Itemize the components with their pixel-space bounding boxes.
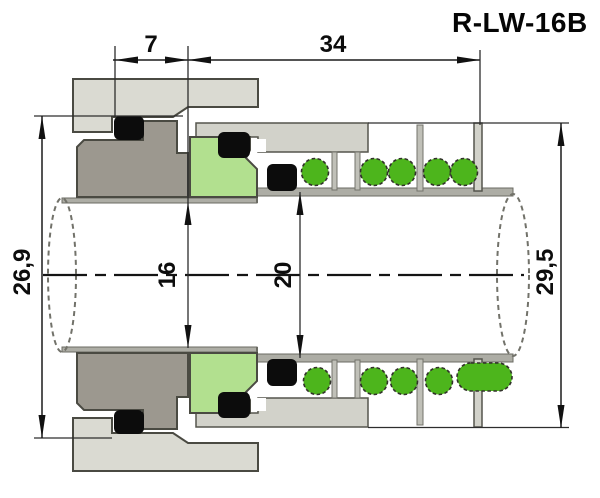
dim-34-label: 34	[320, 31, 347, 58]
drawing-title: R-LW-16B	[452, 7, 588, 38]
spring-coil	[424, 159, 451, 186]
spring-post-lower-2	[355, 360, 360, 398]
arrowhead	[185, 325, 192, 348]
dim-26-9-label: 26,9	[9, 249, 36, 296]
arrowhead	[39, 415, 46, 438]
spring-post-upper-1	[332, 152, 337, 190]
dim-7-label: 7	[144, 31, 157, 58]
dim-16-label: 16	[154, 262, 181, 289]
arrowhead	[115, 57, 138, 64]
arrowhead	[558, 123, 565, 146]
retainer-notch-lower	[257, 398, 266, 411]
oring-bellows-lower	[218, 392, 250, 418]
oring-shaft-lower	[267, 359, 297, 386]
spring-coil	[391, 368, 418, 395]
oring-seat-upper	[114, 116, 144, 140]
arrowhead	[165, 57, 188, 64]
arrowhead	[185, 202, 192, 225]
retainer-notch-upper	[257, 139, 266, 152]
spring-post-upper-2	[355, 152, 360, 190]
spring-coil	[389, 159, 416, 186]
spring-coil	[361, 159, 388, 186]
oring-shaft-upper	[267, 164, 297, 191]
spring-coil	[451, 159, 478, 186]
spring-coil	[361, 368, 388, 395]
shaft-16-top-surface	[62, 198, 257, 203]
spring-coil	[304, 368, 331, 395]
seal-lower-half	[73, 353, 512, 471]
arrowhead	[457, 57, 480, 64]
dim-29-5-label: 29,5	[532, 249, 559, 296]
spring-coil	[426, 368, 453, 395]
oring-seat-lower	[114, 410, 144, 434]
arrowhead	[558, 405, 565, 428]
oring-bellows-upper	[218, 132, 250, 158]
spring-post-upper-3	[417, 125, 423, 191]
arrowhead	[188, 57, 211, 64]
seal-upper-half	[73, 79, 482, 197]
seal-drawing-page: 7 34 16 20 26,9 29,5 R-LW-16B	[0, 0, 600, 498]
spring-coil	[302, 159, 329, 186]
spring-coil-pill	[457, 363, 512, 391]
seal-cross-section-drawing: 7 34 16 20 26,9 29,5 R-LW-16B	[0, 0, 600, 498]
spring-post-lower-3	[417, 359, 423, 425]
arrowhead	[39, 116, 46, 139]
shaft-16-bottom-surface	[62, 347, 257, 352]
dim-20-label: 20	[270, 262, 297, 289]
spring-coils-upper	[302, 159, 478, 186]
spring-post-lower-1	[332, 360, 337, 398]
